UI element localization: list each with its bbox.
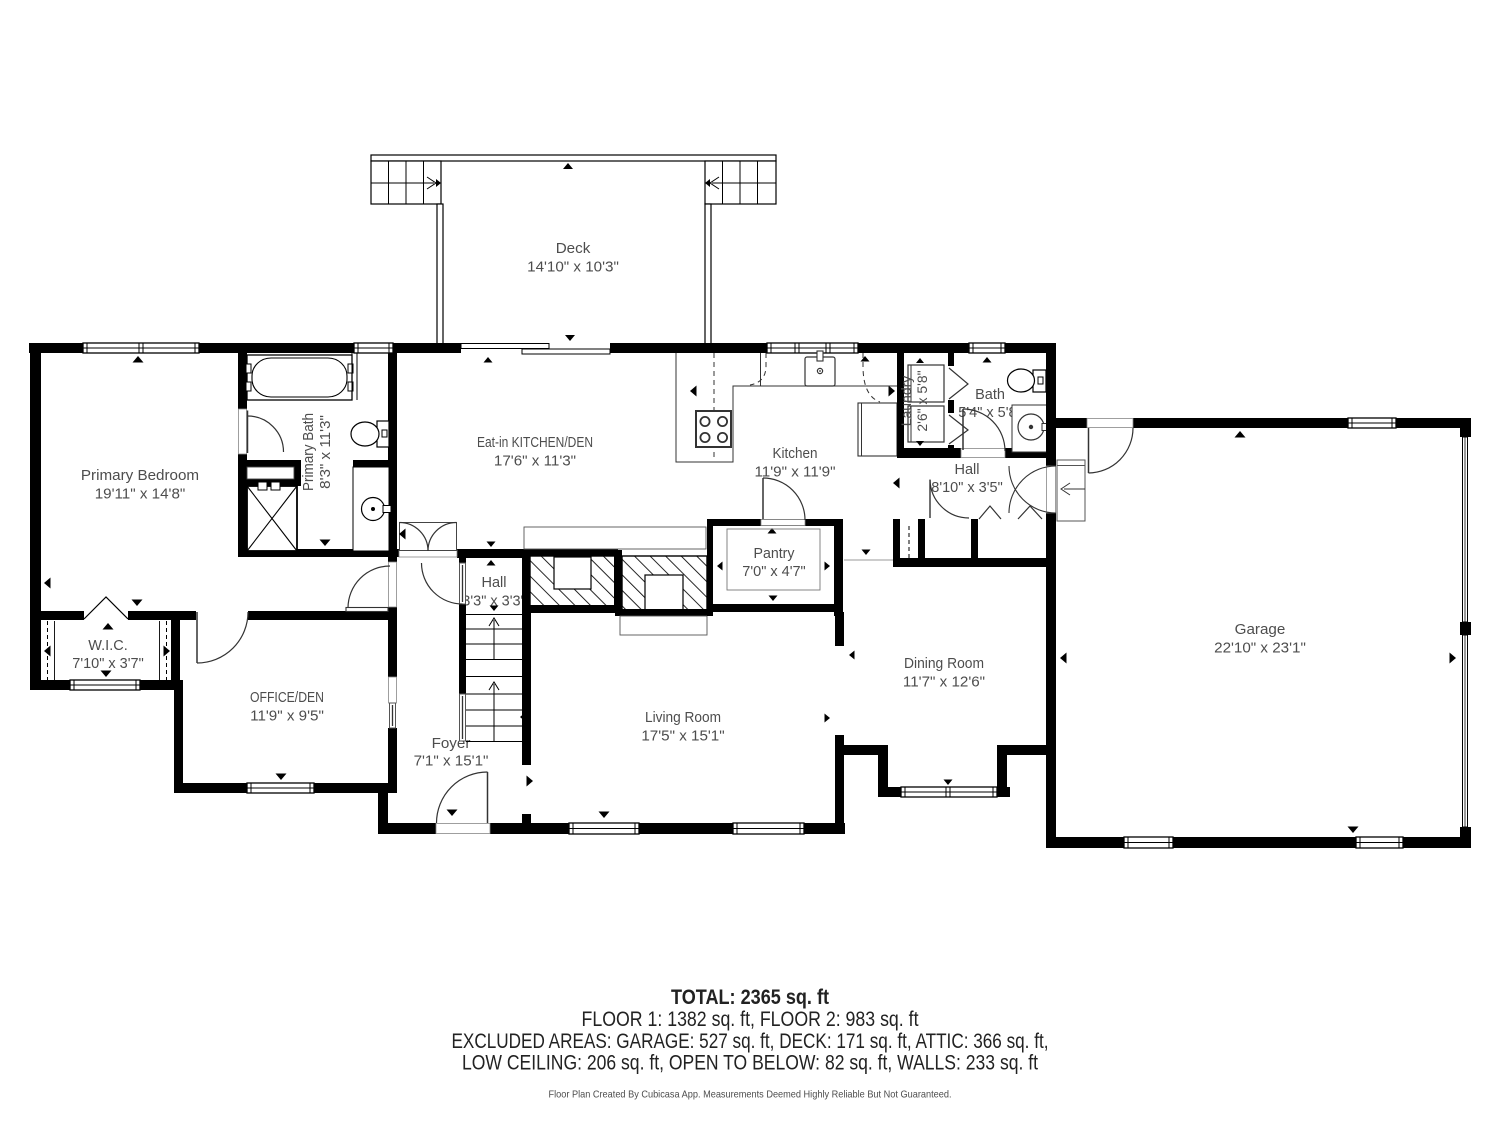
svg-text:17'5" x 15'1": 17'5" x 15'1": [641, 728, 724, 745]
svg-text:Floor Plan Created By Cubicasa: Floor Plan Created By Cubicasa App. Meas…: [549, 1090, 952, 1101]
svg-text:OFFICE/DEN: OFFICE/DEN: [250, 689, 324, 706]
svg-text:FLOOR 1: 1382 sq. ft, FLOOR 2:: FLOOR 1: 1382 sq. ft, FLOOR 2: 983 sq. f…: [582, 1007, 919, 1031]
svg-text:Living Room: Living Room: [645, 709, 721, 726]
svg-text:LOW CEILING: 206 sq. ft, OPEN: LOW CEILING: 206 sq. ft, OPEN TO BELOW: …: [462, 1051, 1038, 1075]
svg-text:Garage: Garage: [1235, 621, 1286, 638]
svg-text:14'10" x 10'3": 14'10" x 10'3": [527, 259, 619, 276]
svg-text:TOTAL: 2365 sq. ft: TOTAL: 2365 sq. ft: [671, 985, 829, 1009]
svg-text:7'10" x 3'7": 7'10" x 3'7": [72, 656, 143, 672]
svg-text:Hall: Hall: [955, 462, 980, 478]
svg-text:11'7" x 12'6": 11'7" x 12'6": [903, 674, 985, 691]
svg-text:7'1" x 15'1": 7'1" x 15'1": [414, 753, 489, 770]
svg-text:Bath: Bath: [975, 387, 1005, 403]
svg-text:EXCLUDED AREAS: GARAGE: 527 sq: EXCLUDED AREAS: GARAGE: 527 sq. ft, DECK…: [452, 1029, 1049, 1053]
svg-text:17'6" x 11'3": 17'6" x 11'3": [494, 453, 576, 470]
svg-text:2'6" x 5'8": 2'6" x 5'8": [914, 370, 930, 431]
svg-text:Laundry: Laundry: [898, 376, 914, 427]
svg-text:22'10" x 23'1": 22'10" x 23'1": [1214, 640, 1306, 657]
svg-text:Primary Bedroom: Primary Bedroom: [81, 467, 199, 484]
svg-text:7'0" x 4'7": 7'0" x 4'7": [742, 564, 805, 580]
svg-text:11'9" x 9'5": 11'9" x 9'5": [250, 708, 324, 725]
svg-text:W.I.C.: W.I.C.: [88, 638, 127, 654]
svg-text:Primary Bath: Primary Bath: [300, 413, 317, 491]
svg-text:Dining Room: Dining Room: [904, 655, 984, 672]
svg-text:8'3" x 11'3": 8'3" x 11'3": [317, 415, 334, 489]
svg-text:Deck: Deck: [556, 240, 591, 257]
svg-text:Eat-in KITCHEN/DEN: Eat-in KITCHEN/DEN: [477, 434, 593, 451]
svg-text:Hall: Hall: [482, 575, 507, 591]
svg-text:Kitchen: Kitchen: [773, 445, 818, 462]
svg-text:19'11" x 14'8": 19'11" x 14'8": [95, 486, 186, 503]
svg-text:8'10" x 3'5": 8'10" x 3'5": [931, 480, 1002, 496]
svg-text:Pantry: Pantry: [754, 546, 796, 562]
